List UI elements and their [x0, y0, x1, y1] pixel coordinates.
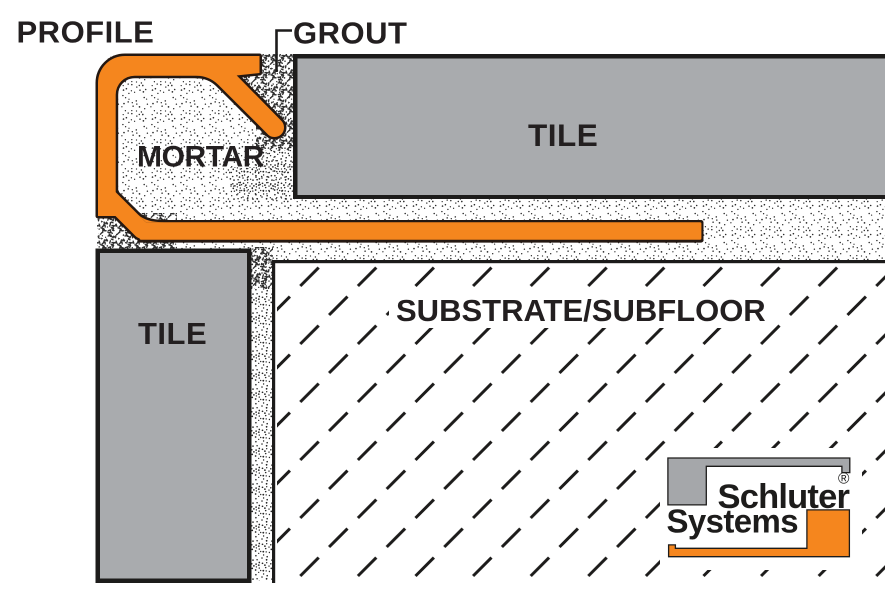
svg-text:SUBSTRATE/SUBFLOOR: SUBSTRATE/SUBFLOOR: [396, 293, 766, 328]
svg-text:GROUT: GROUT: [293, 16, 407, 51]
svg-text:TILE: TILE: [528, 117, 598, 153]
svg-text:MORTAR: MORTAR: [137, 141, 265, 174]
svg-text:PROFILE: PROFILE: [17, 15, 155, 50]
svg-text:TILE: TILE: [138, 316, 207, 351]
svg-text:Systems: Systems: [667, 503, 799, 540]
svg-text:®: ®: [838, 471, 850, 488]
